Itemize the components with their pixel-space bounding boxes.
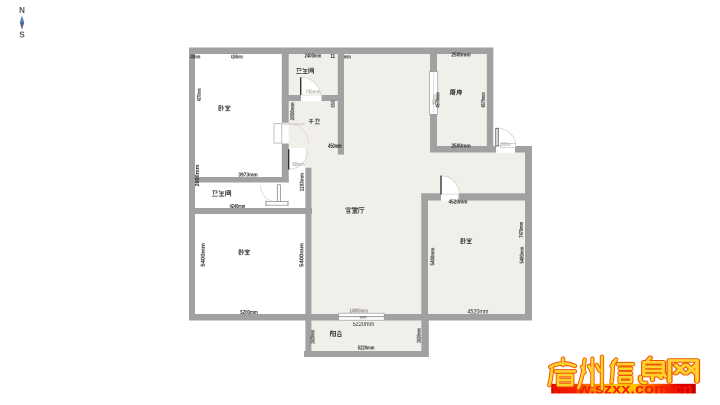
svg-text:5200mm: 5200mm bbox=[240, 310, 258, 316]
svg-text:1600: 1600 bbox=[359, 315, 366, 319]
svg-text:2000mm: 2000mm bbox=[195, 164, 201, 186]
svg-text:5400mm: 5400mm bbox=[430, 248, 436, 266]
svg-text:11: 11 bbox=[330, 54, 335, 60]
svg-text:650: 650 bbox=[331, 101, 337, 108]
svg-text:5400mm: 5400mm bbox=[201, 243, 207, 267]
svg-text:mm: mm bbox=[344, 54, 351, 60]
svg-text:N: N bbox=[19, 6, 25, 15]
svg-text:7470mm: 7470mm bbox=[519, 222, 525, 238]
svg-text:2500mm: 2500mm bbox=[451, 53, 470, 59]
svg-text:400mm: 400mm bbox=[190, 55, 200, 61]
svg-text:450mm: 450mm bbox=[328, 144, 342, 150]
svg-text:4520mm: 4520mm bbox=[449, 200, 468, 206]
svg-text:740mm: 740mm bbox=[305, 89, 320, 95]
svg-text:4240mm: 4240mm bbox=[230, 204, 246, 210]
svg-text:S: S bbox=[19, 31, 25, 40]
svg-text:5400mm: 5400mm bbox=[299, 243, 305, 267]
svg-text:14900mm: 14900mm bbox=[349, 308, 368, 314]
svg-text:2500mm: 2500mm bbox=[451, 143, 470, 149]
svg-text:4520mm: 4520mm bbox=[467, 309, 488, 315]
svg-text:1193mm: 1193mm bbox=[300, 173, 306, 191]
svg-text:590mm: 590mm bbox=[292, 162, 305, 168]
svg-text:5220mm: 5220mm bbox=[358, 346, 375, 352]
svg-text:3973mm: 3973mm bbox=[238, 173, 258, 179]
svg-text:4570mm: 4570mm bbox=[481, 92, 487, 107]
svg-text:1000mm: 1000mm bbox=[501, 142, 511, 148]
svg-text:4570mm: 4570mm bbox=[435, 92, 441, 107]
svg-text:1620mm: 1620mm bbox=[310, 330, 316, 344]
svg-text:4160mm: 4160mm bbox=[231, 55, 243, 61]
svg-text:1620mm: 1620mm bbox=[417, 328, 423, 343]
svg-text:5400mm: 5400mm bbox=[520, 247, 526, 264]
svg-text:2400mm: 2400mm bbox=[305, 54, 322, 60]
svg-text:5220mm: 5220mm bbox=[353, 322, 375, 328]
svg-text:2050mm: 2050mm bbox=[290, 102, 296, 120]
svg-text:4570mm: 4570mm bbox=[197, 88, 203, 101]
